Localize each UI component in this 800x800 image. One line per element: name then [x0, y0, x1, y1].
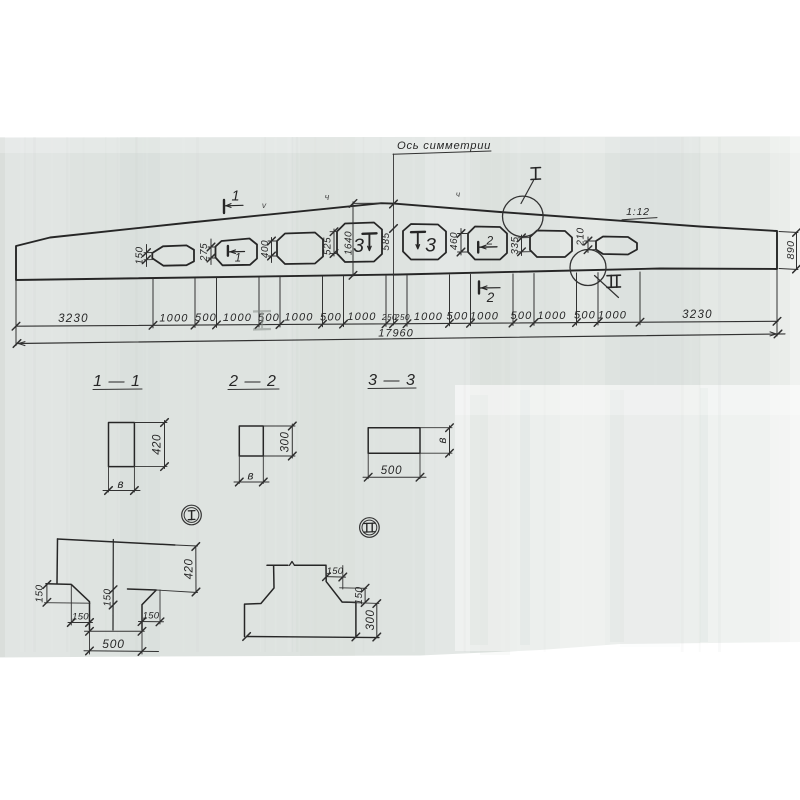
- svg-text:1000: 1000: [537, 310, 566, 322]
- svg-text:1000: 1000: [284, 312, 313, 324]
- svg-text:300: 300: [365, 610, 377, 631]
- svg-text:1640: 1640: [343, 231, 354, 255]
- svg-text:420: 420: [183, 559, 195, 580]
- svg-text:1: 1: [231, 189, 239, 205]
- svg-text:3230: 3230: [58, 313, 89, 325]
- svg-text:150: 150: [134, 246, 145, 264]
- svg-text:3: 3: [425, 235, 436, 257]
- svg-text:1000: 1000: [347, 311, 376, 323]
- svg-text:890: 890: [785, 240, 797, 259]
- svg-text:1000: 1000: [414, 311, 443, 323]
- svg-text:150: 150: [34, 584, 45, 602]
- svg-text:250: 250: [394, 313, 410, 322]
- svg-text:150: 150: [143, 611, 160, 622]
- svg-text:500: 500: [381, 465, 403, 477]
- svg-text:1000: 1000: [223, 312, 252, 324]
- svg-text:ч: ч: [456, 189, 461, 199]
- svg-text:335: 335: [510, 236, 521, 254]
- svg-text:500: 500: [195, 312, 217, 324]
- svg-text:2 — 2: 2 — 2: [228, 373, 277, 390]
- svg-text:500: 500: [447, 311, 469, 323]
- svg-text:150: 150: [327, 566, 344, 577]
- svg-text:500: 500: [102, 637, 124, 651]
- svg-text:500: 500: [320, 311, 342, 323]
- svg-text:в: в: [117, 479, 123, 491]
- svg-text:420: 420: [151, 434, 163, 455]
- svg-text:500: 500: [511, 310, 533, 322]
- svg-text:400: 400: [260, 240, 271, 258]
- svg-text:Ось симметрии: Ось симметрии: [397, 140, 491, 152]
- svg-text:ч: ч: [325, 192, 330, 202]
- svg-text:150: 150: [72, 612, 89, 623]
- svg-text:460: 460: [449, 232, 460, 250]
- svg-text:2: 2: [485, 233, 493, 247]
- svg-text:300: 300: [279, 432, 291, 453]
- svg-text:585: 585: [381, 232, 392, 250]
- svg-text:1000: 1000: [470, 310, 499, 322]
- svg-text:17960: 17960: [378, 327, 414, 339]
- svg-text:3 — 3: 3 — 3: [368, 372, 416, 389]
- svg-text:1000: 1000: [159, 312, 188, 324]
- svg-text:150: 150: [102, 588, 113, 606]
- svg-text:1: 1: [235, 253, 241, 265]
- svg-text:3230: 3230: [682, 309, 713, 321]
- svg-text:2: 2: [486, 290, 495, 305]
- svg-text:в: в: [437, 437, 449, 443]
- svg-text:210: 210: [575, 227, 586, 246]
- svg-text:150: 150: [354, 586, 365, 604]
- svg-text:3: 3: [353, 235, 364, 257]
- svg-text:1 — 1: 1 — 1: [93, 373, 141, 390]
- svg-text:1000: 1000: [598, 310, 627, 322]
- svg-text:в: в: [247, 471, 253, 483]
- svg-text:500: 500: [574, 310, 596, 322]
- svg-text:1:12: 1:12: [626, 206, 650, 218]
- svg-text:275: 275: [199, 243, 210, 262]
- svg-text:525: 525: [322, 237, 333, 255]
